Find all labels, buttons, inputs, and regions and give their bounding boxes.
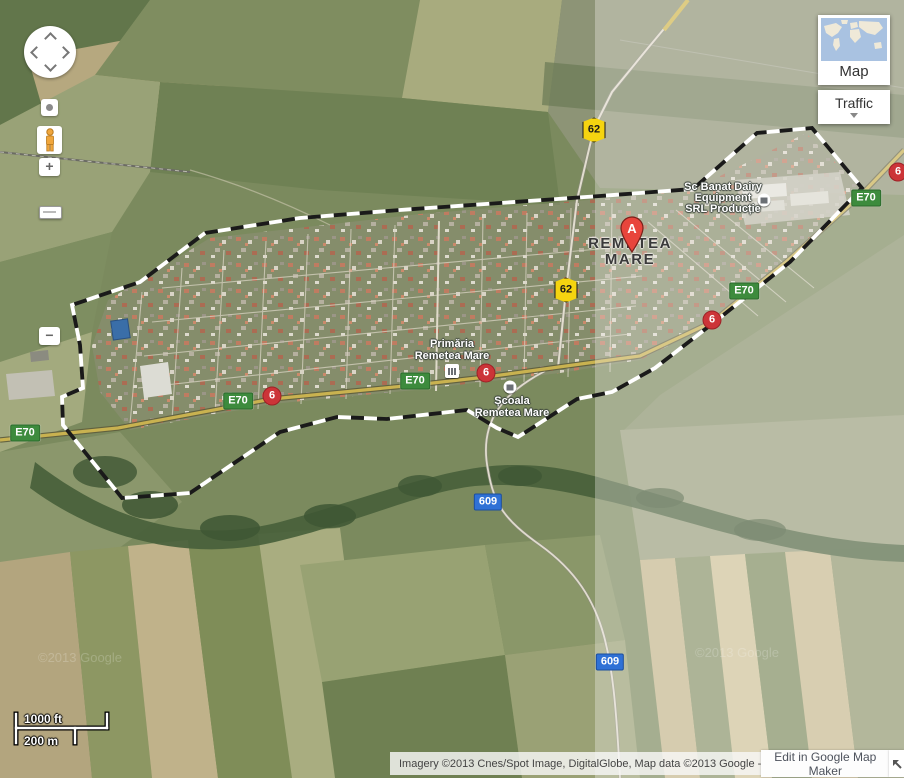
school-poi-icon[interactable] (504, 381, 517, 394)
factory-poi-icon[interactable] (758, 194, 771, 207)
road-badge-e70: E70 (223, 393, 253, 410)
map-canvas[interactable]: ©2013 Google ©2013 Google E70 E70 E70 E7… (0, 0, 904, 778)
road-badge-62: 62 (583, 118, 606, 143)
road-badge-609: 609 (596, 654, 624, 671)
reset-dot-icon (46, 104, 53, 111)
road-badge-6: 6 (889, 163, 904, 182)
factory-glyph (761, 197, 768, 203)
attribution-text: Imagery ©2013 Cnes/Spot Image, DigitalGl… (390, 758, 761, 770)
zoom-in-button[interactable]: + (39, 158, 60, 176)
traffic-label: Traffic (818, 95, 890, 111)
cityhall-poi-icon[interactable] (445, 364, 459, 378)
road-badge-6: 6 (477, 364, 496, 383)
pan-control[interactable] (24, 26, 76, 78)
road-badge-e70: E70 (10, 425, 40, 442)
satellite-imagery[interactable] (0, 0, 904, 778)
road-badge-62: 62 (555, 278, 578, 303)
slider-grip-icon (43, 211, 56, 213)
pan-down-arrow-icon[interactable] (44, 59, 57, 72)
road-badge-e70: E70 (400, 373, 430, 390)
pan-up-arrow-icon[interactable] (44, 32, 57, 45)
building-glyph (448, 368, 456, 375)
road-badge-e70: E70 (729, 283, 759, 300)
marker-a-pin[interactable]: A (620, 216, 644, 253)
pan-reset-button[interactable] (41, 99, 58, 116)
overview-map-label: Map (818, 63, 890, 80)
school-glyph (507, 384, 514, 390)
attribution-bar: Imagery ©2013 Cnes/Spot Image, DigitalGl… (390, 752, 904, 775)
road-badge-6: 6 (263, 387, 282, 406)
zoom-slider-handle[interactable] (39, 206, 62, 219)
pan-right-arrow-icon[interactable] (57, 46, 70, 59)
traffic-button[interactable]: Traffic (818, 90, 890, 124)
world-map-icon (821, 18, 887, 61)
chevron-down-icon (850, 113, 858, 118)
collapse-arrow-icon (891, 758, 903, 770)
marker-a-letter: A (627, 221, 637, 236)
pegman-button[interactable] (37, 126, 62, 154)
road-badge-609: 609 (474, 494, 502, 511)
pegman-icon (42, 128, 58, 152)
overview-map-button[interactable]: Map (818, 15, 890, 85)
zoom-out-button[interactable]: − (39, 327, 60, 345)
road-badge-e70: E70 (851, 190, 881, 207)
edit-mapmaker-button[interactable]: Edit in Google Map Maker (761, 750, 889, 777)
road-badge-6: 6 (703, 311, 722, 330)
pan-left-arrow-icon[interactable] (30, 46, 43, 59)
collapse-attribution-button[interactable] (889, 750, 904, 777)
